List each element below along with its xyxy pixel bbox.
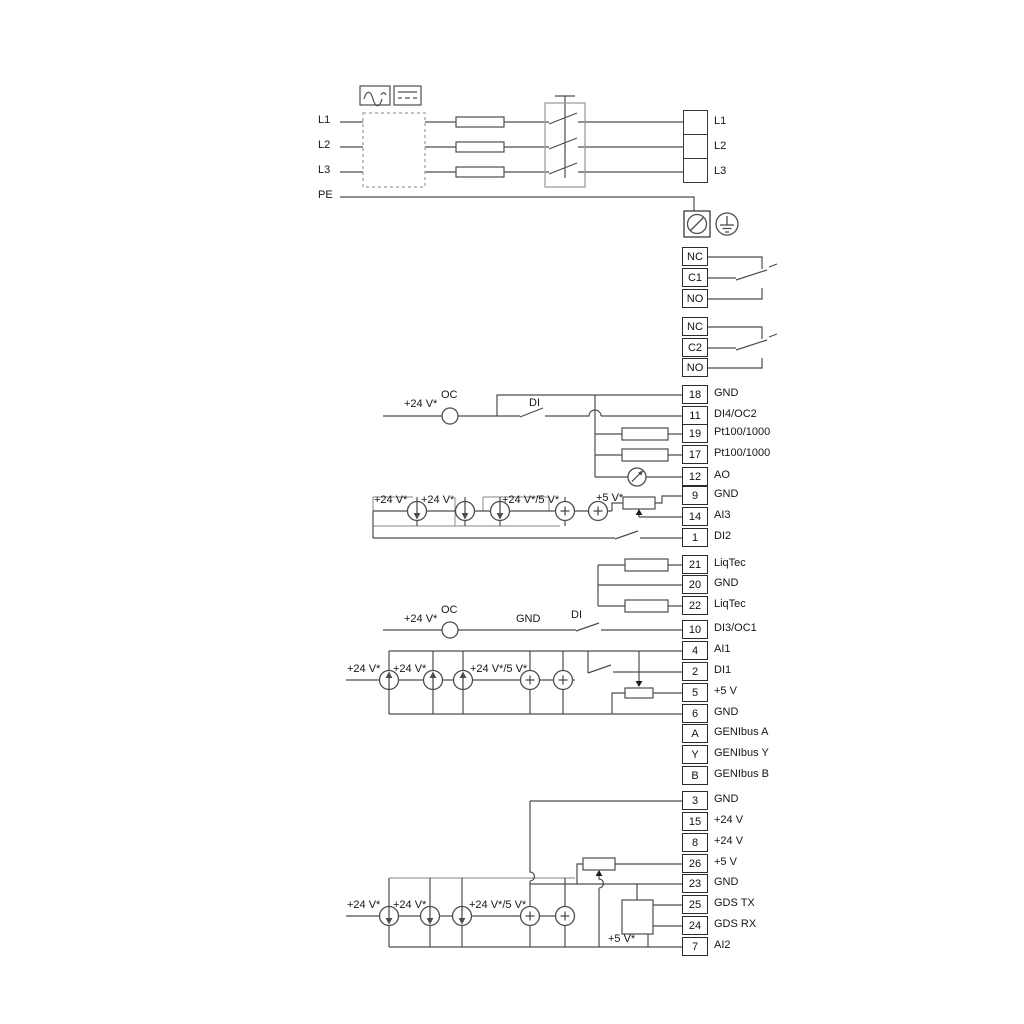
terminal-label-18: GENIbus B <box>714 768 769 781</box>
terminal-cell-1-text: 11 <box>689 410 700 422</box>
power-terminal-l3-label: L3 <box>714 165 726 178</box>
annotation-plus24-3: +24 V* <box>421 494 454 506</box>
terminal-label-11: DI3/OC1 <box>714 622 757 635</box>
relay2-terminal-2: NO <box>682 358 708 377</box>
terminal-cell-12-text: 4 <box>692 645 698 657</box>
relay2-terminal-0: NC <box>682 317 708 336</box>
terminal-cell-11-text: 10 <box>689 624 701 636</box>
terminal-cell-5-text: 9 <box>692 490 698 502</box>
terminal-cell-19: 3 <box>682 791 708 810</box>
annotation-gnd-1: GND <box>516 613 540 625</box>
terminal-cell-6-text: 14 <box>689 511 701 523</box>
resistor-pt100-a <box>622 428 668 440</box>
terminal-cell-11: 10 <box>682 620 708 639</box>
relay1-terminal-2-text: NO <box>687 293 704 305</box>
current-source-up-icon <box>424 671 443 690</box>
terminal-cell-3-text: 17 <box>689 449 701 461</box>
terminal-cell-5: 9 <box>682 486 708 505</box>
terminal-cell-13: 2 <box>682 662 708 681</box>
annotation-plus24-5v-3: +24 V*/5 V* <box>469 899 526 911</box>
terminal-label-20: +24 V <box>714 814 743 827</box>
wiper-arrow-ai1 <box>636 681 643 687</box>
terminal-cell-18-text: B <box>691 770 698 782</box>
terminal-cell-25-text: 24 <box>689 920 701 932</box>
fuse-l1 <box>456 117 504 127</box>
terminal-label-21: +24 V <box>714 835 743 848</box>
annotation-plus24-8: +24 V* <box>393 899 426 911</box>
oc-contact-icon <box>442 622 458 638</box>
terminal-cell-21-text: 8 <box>692 837 698 849</box>
terminal-cell-15-text: 6 <box>692 708 698 720</box>
terminal-label-14: +5 V <box>714 685 737 698</box>
terminal-label-1: DI4/OC2 <box>714 408 757 421</box>
annotation-oc-2: OC <box>441 604 458 616</box>
diagram-wires <box>0 0 1024 1024</box>
wiper-arrow-ai3 <box>636 509 643 515</box>
gds-sensor-box <box>622 900 653 934</box>
annotation-plus24-5: +24 V* <box>347 663 380 675</box>
terminal-cell-22-text: 26 <box>689 858 701 870</box>
terminal-label-15: GND <box>714 706 738 719</box>
power-terminal-l1-label: L1 <box>714 115 726 128</box>
potentiometer-ai1 <box>625 688 653 698</box>
annotation-plus24-7: +24 V* <box>347 899 380 911</box>
relay1-terminal-2: NO <box>682 289 708 308</box>
annotation-plus24-5v-2: +24 V*/5 V* <box>470 663 527 675</box>
potentiometer-ai3 <box>623 497 655 509</box>
annotation-plus24-5v-1: +24 V*/5 V* <box>502 494 559 506</box>
fuse-l3 <box>456 167 504 177</box>
terminal-cell-23-text: 23 <box>689 878 701 890</box>
dc-symbol-box <box>394 86 421 105</box>
wire-lines <box>340 96 777 947</box>
terminal-label-9: GND <box>714 577 738 590</box>
terminal-cell-22: 26 <box>682 854 708 873</box>
power-terminal-l2-label: L2 <box>714 140 726 153</box>
terminal-label-26: AI2 <box>714 939 731 952</box>
terminal-cell-26: 7 <box>682 937 708 956</box>
analog-output-meter-icon <box>628 468 646 486</box>
resistor-liqtec-b <box>625 600 668 612</box>
terminal-cell-1: 11 <box>682 406 708 425</box>
terminal-label-6: AI3 <box>714 509 731 522</box>
terminal-cell-18: B <box>682 766 708 785</box>
relay1-terminal-1: C1 <box>682 268 708 287</box>
terminal-label-17: GENIbus Y <box>714 747 769 760</box>
annotation-oc-1: OC <box>441 389 458 401</box>
terminal-cell-21: 8 <box>682 833 708 852</box>
relay2-terminal-2-text: NO <box>687 362 704 374</box>
filter-box <box>363 113 425 187</box>
terminal-cell-9-text: 20 <box>689 579 701 591</box>
line-pe-label: PE <box>318 189 333 201</box>
relay1-terminal-0-text: NC <box>687 251 703 263</box>
terminal-cell-14-text: 5 <box>692 687 698 699</box>
line-l1-label: L1 <box>318 114 330 126</box>
wiring-diagram: L1 L2 L3 PE L1 L2 L3 +24 V* OC DI +24 V*… <box>0 0 1024 1024</box>
voltage-source-plus-icon <box>554 671 573 690</box>
resistor-liqtec-a <box>625 559 668 571</box>
terminal-label-12: AI1 <box>714 643 731 656</box>
ac-symbol-box <box>360 86 390 105</box>
annotation-plus24-2: +24 V* <box>374 494 407 506</box>
terminal-label-25: GDS RX <box>714 918 756 931</box>
power-terminal-l1 <box>683 110 708 135</box>
terminal-label-19: GND <box>714 793 738 806</box>
terminal-cell-20: 15 <box>682 812 708 831</box>
terminal-cell-6: 14 <box>682 507 708 526</box>
potentiometer-ai2 <box>583 858 615 870</box>
wiper-arrow-ai2 <box>596 870 603 876</box>
terminal-cell-14: 5 <box>682 683 708 702</box>
terminal-cell-8-text: 21 <box>689 559 701 571</box>
terminal-cell-24-text: 25 <box>689 899 701 911</box>
terminal-label-0: GND <box>714 387 738 400</box>
terminal-label-4: AO <box>714 469 730 482</box>
terminal-label-13: DI1 <box>714 664 731 677</box>
terminal-cell-15: 6 <box>682 704 708 723</box>
terminal-cell-17-text: Y <box>691 749 698 761</box>
terminal-label-5: GND <box>714 488 738 501</box>
terminal-label-8: LiqTec <box>714 557 746 570</box>
terminal-cell-10-text: 22 <box>689 600 701 612</box>
line-l3-label: L3 <box>318 164 330 176</box>
relay1-terminal-0: NC <box>682 247 708 266</box>
terminal-label-22: +5 V <box>714 856 737 869</box>
fuse-l2 <box>456 142 504 152</box>
relay2-terminal-1: C2 <box>682 338 708 357</box>
terminal-cell-4-text: 12 <box>689 471 701 483</box>
terminal-cell-16: A <box>682 724 708 743</box>
terminal-cell-17: Y <box>682 745 708 764</box>
terminal-cell-23: 23 <box>682 874 708 893</box>
annotation-plus24-4: +24 V* <box>404 613 437 625</box>
terminal-label-23: GND <box>714 876 738 889</box>
annotation-plus5-2: +5 V* <box>608 933 635 945</box>
voltage-source-plus-icon <box>589 502 608 521</box>
terminal-cell-13-text: 2 <box>692 666 698 678</box>
power-terminal-l3 <box>683 158 708 183</box>
terminal-cell-26-text: 7 <box>692 941 698 953</box>
terminal-label-3: Pt100/1000 <box>714 447 770 460</box>
line-l2-label: L2 <box>318 139 330 151</box>
annotation-plus24-6: +24 V* <box>393 663 426 675</box>
current-source-down-icon <box>456 502 475 521</box>
terminal-cell-2-text: 19 <box>689 428 701 440</box>
terminal-cell-7-text: 1 <box>692 532 698 544</box>
terminal-cell-9: 20 <box>682 575 708 594</box>
terminal-cell-20-text: 15 <box>689 816 701 828</box>
terminal-cell-8: 21 <box>682 555 708 574</box>
terminal-label-7: DI2 <box>714 530 731 543</box>
relay2-terminal-0-text: NC <box>687 321 703 333</box>
terminal-label-2: Pt100/1000 <box>714 426 770 439</box>
terminal-label-10: LiqTec <box>714 598 746 611</box>
relay1-terminal-1-text: C1 <box>688 272 702 284</box>
terminal-cell-0-text: 18 <box>689 389 701 401</box>
terminal-label-24: GDS TX <box>714 897 755 910</box>
annotation-di-2: DI <box>571 609 582 621</box>
resistor-pt100-b <box>622 449 668 461</box>
earth-ground-icon <box>716 213 738 235</box>
terminal-cell-19-text: 3 <box>692 795 698 807</box>
terminal-cell-16-text: A <box>691 728 698 740</box>
annotation-plus24-1: +24 V* <box>404 398 437 410</box>
terminal-cell-10: 22 <box>682 596 708 615</box>
annotation-di-1: DI <box>529 397 540 409</box>
bracket-lines <box>373 497 575 878</box>
terminal-cell-12: 4 <box>682 641 708 660</box>
relay2-terminal-1-text: C2 <box>688 342 702 354</box>
terminal-cell-7: 1 <box>682 528 708 547</box>
annotation-plus5-1: +5 V* <box>596 492 623 504</box>
terminal-cell-25: 24 <box>682 916 708 935</box>
terminal-cell-4: 12 <box>682 467 708 486</box>
terminal-cell-3: 17 <box>682 445 708 464</box>
voltage-source-plus-icon <box>556 907 575 926</box>
terminal-cell-2: 19 <box>682 424 708 443</box>
terminal-cell-24: 25 <box>682 895 708 914</box>
oc-contact-icon <box>442 408 458 424</box>
power-terminal-l2 <box>683 134 708 159</box>
terminal-cell-0: 18 <box>682 385 708 404</box>
terminal-label-16: GENIbus A <box>714 726 768 739</box>
